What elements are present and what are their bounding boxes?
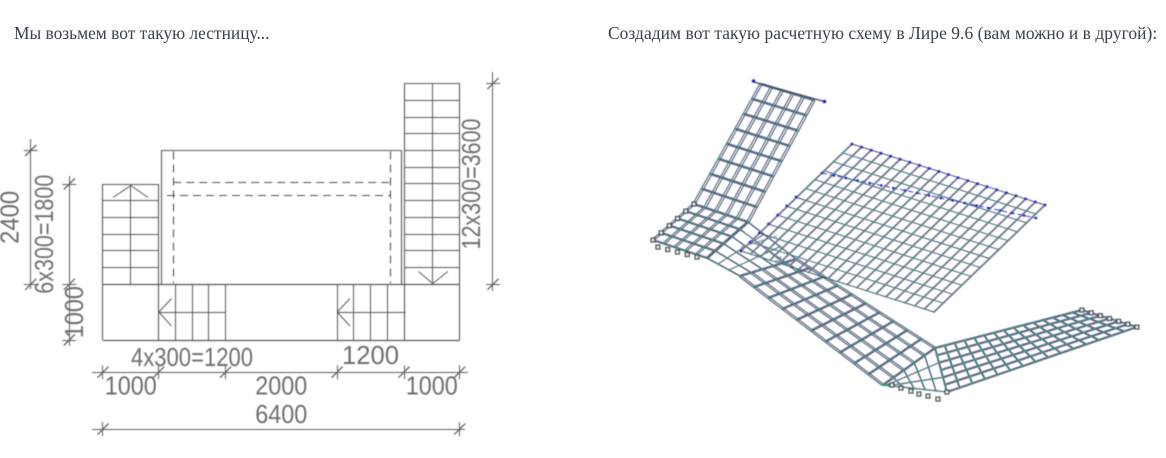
svg-text:1200: 1200 <box>342 340 399 370</box>
svg-text:2400: 2400 <box>0 191 25 244</box>
svg-text:6x300=1800: 6x300=1800 <box>29 175 59 294</box>
svg-text:1000: 1000 <box>105 371 157 401</box>
svg-text:1000: 1000 <box>59 286 89 338</box>
svg-text:2000: 2000 <box>255 371 307 401</box>
svg-text:6400: 6400 <box>255 399 307 429</box>
svg-text:12x300=3600: 12x300=3600 <box>456 119 486 250</box>
svg-text:1000: 1000 <box>406 371 458 401</box>
svg-text:4x300=1200: 4x300=1200 <box>131 342 253 372</box>
